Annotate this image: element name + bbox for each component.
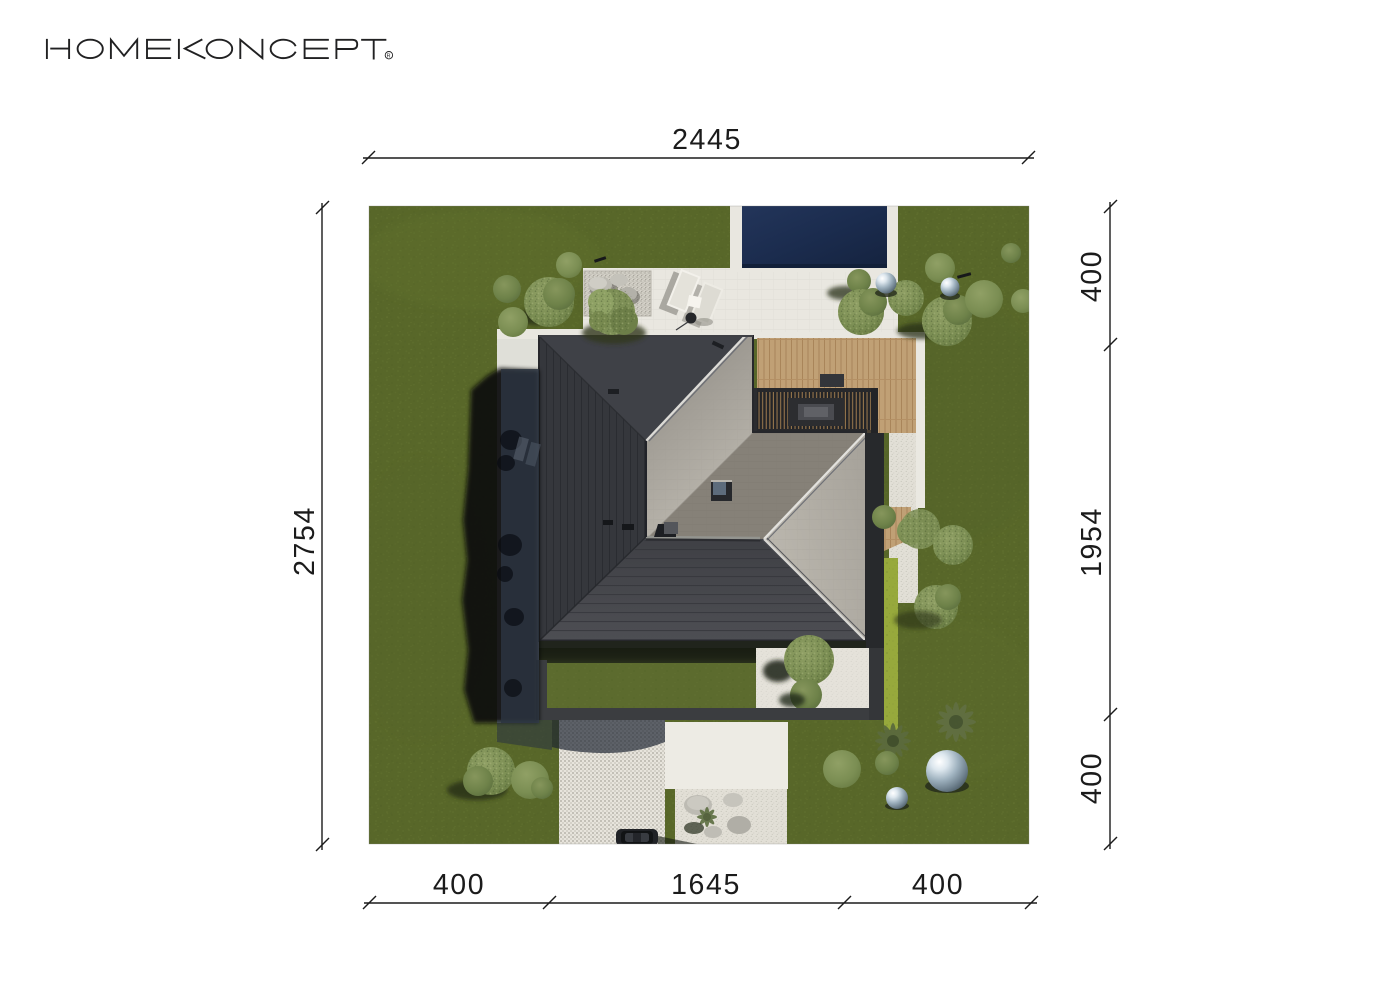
svg-text:2445: 2445 [672,124,742,156]
svg-text:400: 400 [1076,752,1108,804]
svg-text:2754: 2754 [289,506,321,576]
svg-text:1954: 1954 [1076,507,1108,577]
svg-text:400: 400 [433,869,485,901]
svg-text:400: 400 [912,869,964,901]
svg-text:400: 400 [1076,250,1108,302]
svg-text:R: R [387,54,391,60]
svg-text:1645: 1645 [671,869,741,901]
